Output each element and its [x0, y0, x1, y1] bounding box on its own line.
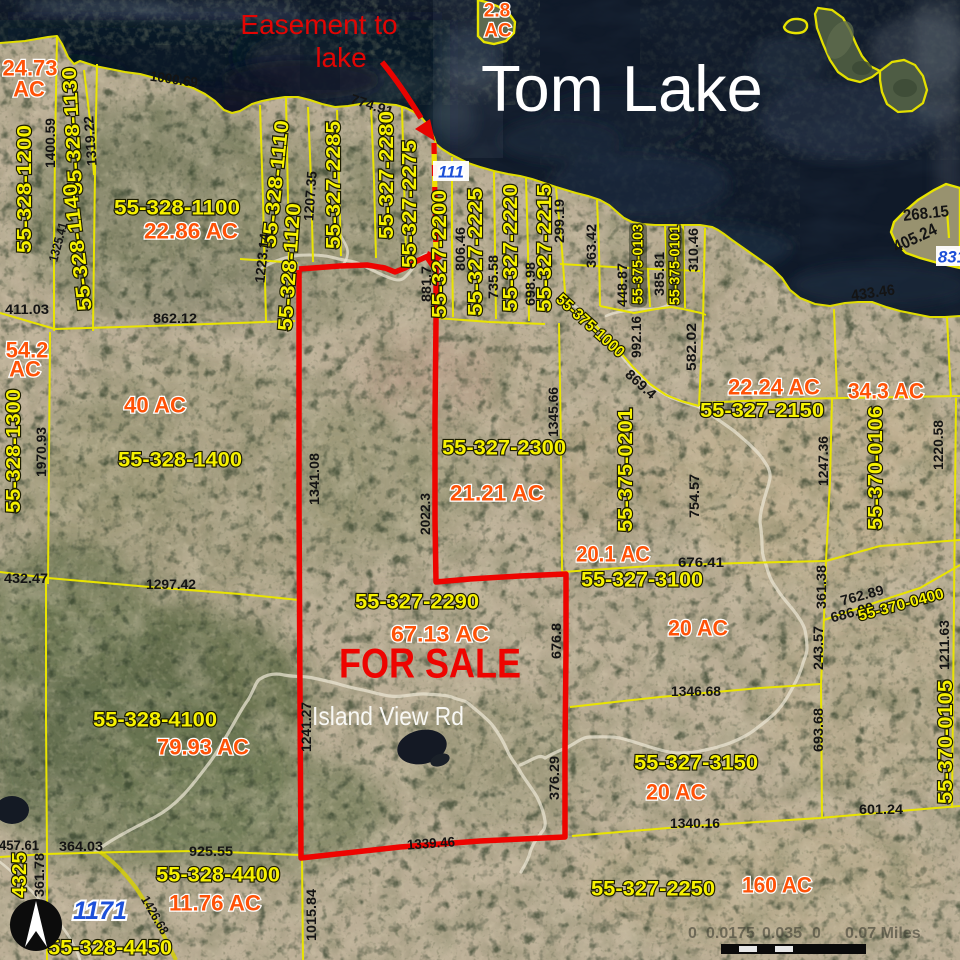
svg-text:1340.16: 1340.16	[670, 815, 720, 831]
svg-text:55-327-3150: 55-327-3150	[634, 752, 758, 775]
svg-text:1345.66: 1345.66	[545, 387, 561, 437]
svg-text:1341.08: 1341.08	[306, 453, 322, 505]
svg-text:FOR SALE: FOR SALE	[339, 640, 521, 687]
svg-text:1339.46: 1339.46	[407, 833, 456, 852]
svg-text:992.16: 992.16	[628, 316, 644, 358]
svg-text:lake: lake	[315, 42, 366, 73]
svg-text:55-375-0101: 55-375-0101	[667, 225, 684, 305]
svg-text:79.93 AC: 79.93 AC	[157, 735, 249, 760]
svg-text:831: 831	[938, 248, 960, 267]
svg-text:20 AC: 20 AC	[668, 616, 728, 641]
svg-text:55-375-0201: 55-375-0201	[615, 408, 637, 532]
svg-text:55-327-2285: 55-327-2285	[323, 121, 345, 249]
svg-text:11.76 AC: 11.76 AC	[169, 891, 261, 916]
svg-text:160 AC: 160 AC	[742, 873, 812, 898]
svg-text:925.55: 925.55	[189, 843, 233, 859]
svg-text:1015.84: 1015.84	[303, 889, 319, 941]
svg-text:55-375-0103: 55-375-0103	[630, 224, 647, 304]
svg-text:0.0175: 0.0175	[706, 925, 755, 942]
svg-text:448.87: 448.87	[614, 263, 630, 307]
svg-text:361.38: 361.38	[813, 565, 829, 609]
svg-text:4325: 4325	[9, 852, 31, 898]
svg-text:55-328-1400: 55-328-1400	[118, 449, 242, 472]
svg-text:457.61: 457.61	[0, 837, 39, 853]
svg-text:363.42: 363.42	[583, 224, 599, 268]
svg-text:2022.3: 2022.3	[417, 493, 433, 535]
svg-text:1171: 1171	[73, 897, 127, 925]
svg-text:Tom Lake: Tom Lake	[481, 52, 763, 125]
svg-text:385.81: 385.81	[651, 252, 667, 296]
svg-text:55-327-2275: 55-327-2275	[399, 140, 421, 268]
svg-text:55-328-4400: 55-328-4400	[156, 864, 280, 887]
svg-text:111: 111	[438, 163, 464, 182]
svg-text:364.03: 364.03	[59, 838, 103, 854]
svg-text:1346.68: 1346.68	[671, 683, 721, 699]
svg-text:34.3 AC: 34.3 AC	[848, 379, 924, 404]
svg-text:Island View Rd: Island View Rd	[312, 701, 464, 731]
svg-text:582.02: 582.02	[683, 323, 699, 371]
svg-text:0: 0	[812, 925, 821, 942]
svg-text:693.68: 693.68	[810, 708, 826, 752]
svg-text:2.8: 2.8	[484, 1, 510, 22]
svg-text:AC: AC	[13, 77, 45, 102]
svg-text:55-327-2225: 55-327-2225	[465, 188, 487, 316]
svg-text:AC: AC	[484, 21, 512, 42]
svg-text:862.12: 862.12	[153, 310, 197, 326]
svg-text:22.24 AC: 22.24 AC	[728, 375, 820, 400]
svg-text:881.7: 881.7	[418, 266, 434, 302]
svg-text:55-370-0106: 55-370-0106	[865, 406, 887, 530]
svg-text:21.21 AC: 21.21 AC	[450, 481, 544, 506]
svg-text:1400.59: 1400.59	[42, 118, 58, 168]
svg-text:40 AC: 40 AC	[124, 393, 186, 418]
svg-text:361.78: 361.78	[31, 853, 47, 897]
svg-text:AC: AC	[9, 357, 41, 382]
svg-text:55-327-2220: 55-327-2220	[500, 184, 522, 312]
svg-text:0.035: 0.035	[762, 925, 802, 942]
svg-text:Easement to: Easement to	[240, 9, 397, 40]
svg-text:1970.93: 1970.93	[33, 427, 49, 477]
svg-text:1241.27: 1241.27	[298, 702, 314, 752]
svg-text:20 AC: 20 AC	[646, 780, 706, 805]
svg-text:735.58: 735.58	[485, 255, 501, 299]
svg-text:55-328-1300: 55-328-1300	[3, 389, 25, 513]
svg-text:55-328-4450: 55-328-4450	[48, 937, 172, 960]
svg-text:55-328-1100: 55-328-1100	[114, 197, 240, 220]
svg-text:0.07 Miles: 0.07 Miles	[845, 925, 921, 942]
svg-text:55-327-2150: 55-327-2150	[700, 400, 824, 422]
svg-text:411.03: 411.03	[5, 301, 49, 317]
svg-text:20.1 AC: 20.1 AC	[576, 542, 650, 567]
svg-text:55-370-0105: 55-370-0105	[935, 680, 957, 804]
svg-text:0: 0	[688, 925, 697, 942]
svg-text:55-327-2300: 55-327-2300	[442, 437, 566, 460]
svg-text:55-328-4100: 55-328-4100	[93, 709, 217, 732]
svg-text:310.46: 310.46	[685, 228, 701, 272]
svg-text:55-327-3100: 55-327-3100	[581, 569, 703, 592]
svg-text:376.29: 376.29	[546, 756, 562, 800]
svg-text:601.24: 601.24	[859, 801, 903, 817]
svg-text:55-328-1200: 55-328-1200	[14, 125, 36, 253]
svg-text:22.86 AC: 22.86 AC	[144, 219, 238, 244]
svg-text:243.57: 243.57	[810, 626, 826, 670]
svg-text:55-327-2280: 55-327-2280	[376, 111, 398, 239]
svg-text:1211.63: 1211.63	[936, 620, 952, 670]
svg-text:1220.58: 1220.58	[930, 420, 946, 470]
svg-text:1297.42: 1297.42	[146, 576, 196, 592]
svg-text:676.8: 676.8	[548, 623, 564, 659]
svg-text:1247.36: 1247.36	[815, 436, 831, 486]
svg-text:299.19: 299.19	[551, 199, 567, 243]
svg-text:432.47: 432.47	[4, 570, 48, 586]
svg-text:55-327-2250: 55-327-2250	[591, 878, 715, 901]
svg-text:754.57: 754.57	[686, 474, 702, 518]
svg-text:55-327-2290: 55-327-2290	[355, 591, 479, 614]
